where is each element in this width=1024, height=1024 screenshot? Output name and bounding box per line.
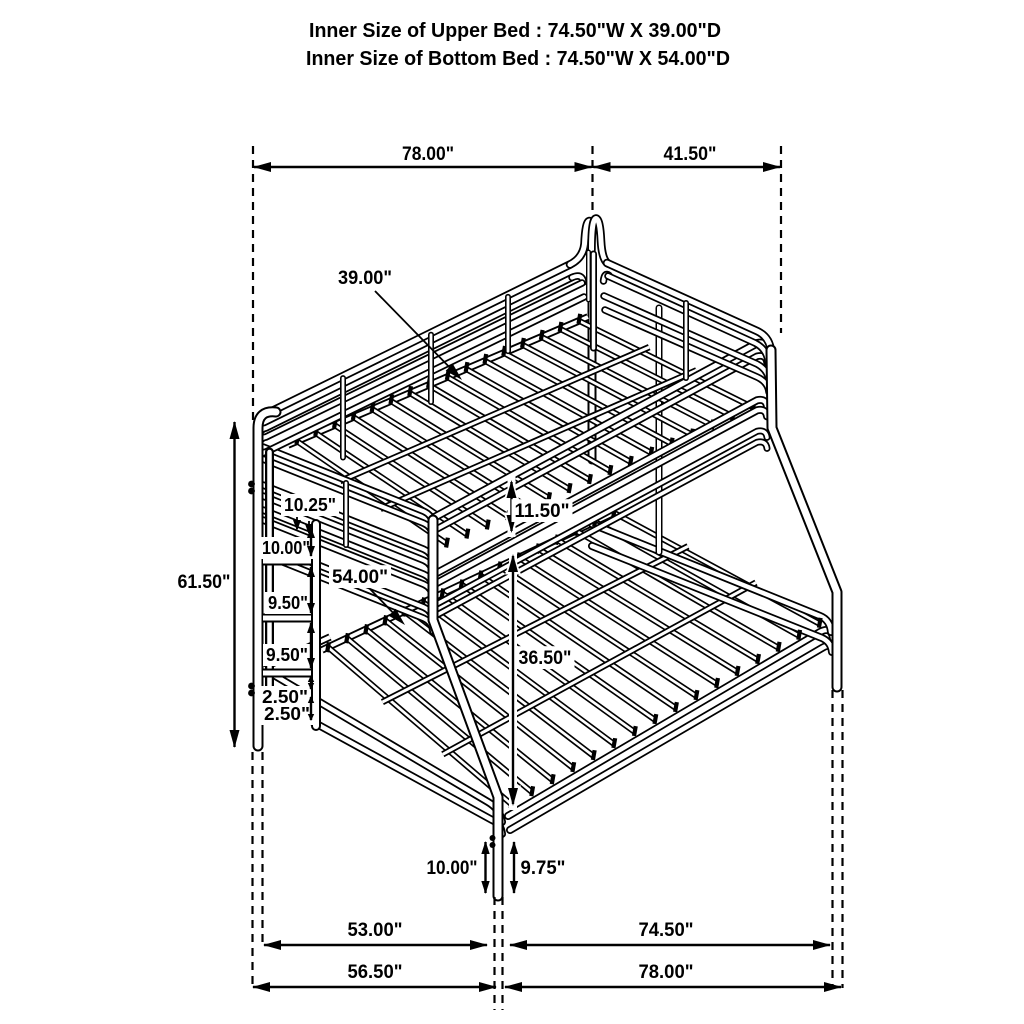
svg-text:Inner Size of Bottom Bed : 74.: Inner Size of Bottom Bed : 74.50"W X 54.… (306, 48, 730, 70)
svg-text:78.00": 78.00" (639, 962, 694, 983)
svg-text:54.00": 54.00" (332, 567, 388, 588)
svg-text:61.50": 61.50" (178, 572, 231, 593)
svg-text:10.00": 10.00" (427, 858, 478, 879)
svg-text:39.00": 39.00" (338, 268, 392, 289)
svg-text:10.00": 10.00" (262, 538, 310, 558)
svg-text:78.00": 78.00" (402, 144, 454, 165)
svg-text:Inner Size of Upper Bed : 74.5: Inner Size of Upper Bed : 74.50"W X 39.0… (309, 20, 721, 42)
svg-text:74.50": 74.50" (639, 920, 694, 941)
svg-text:9.50": 9.50" (268, 593, 308, 613)
svg-text:9.75": 9.75" (521, 858, 566, 879)
svg-text:11.50": 11.50" (515, 501, 570, 522)
svg-text:2.50": 2.50" (264, 704, 310, 724)
svg-text:56.50": 56.50" (348, 962, 403, 983)
svg-text:41.50": 41.50" (664, 144, 717, 165)
svg-text:53.00": 53.00" (348, 920, 403, 941)
svg-text:9.50": 9.50" (266, 645, 308, 665)
svg-text:36.50": 36.50" (519, 648, 572, 669)
svg-text:10.25": 10.25" (284, 495, 336, 515)
